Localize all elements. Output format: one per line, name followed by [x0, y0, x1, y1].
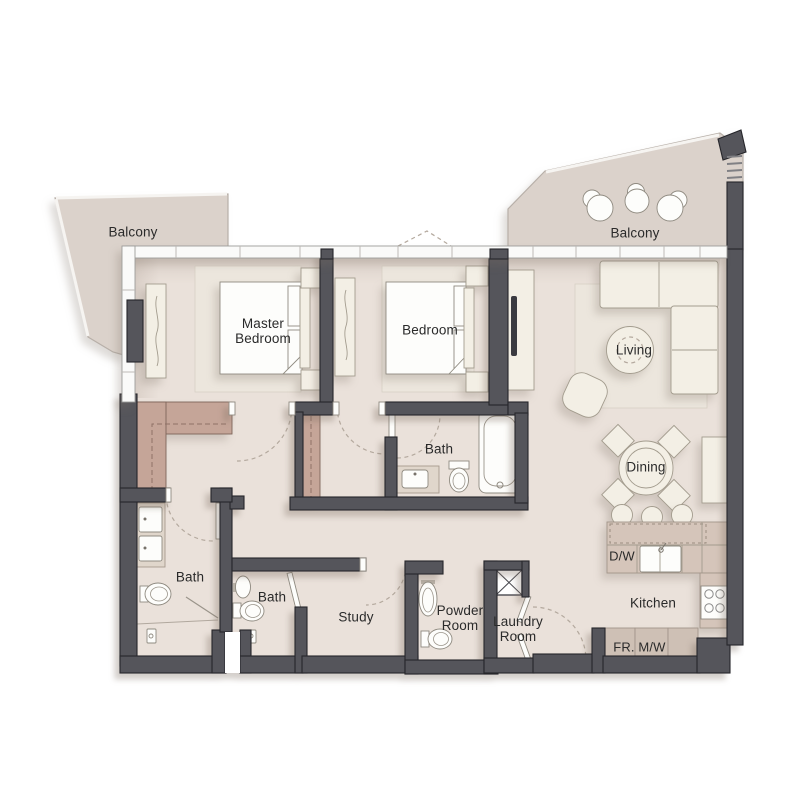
wall-bottom: [603, 656, 700, 673]
powder-sink: [419, 582, 437, 616]
bedroom-nightstand: [466, 266, 488, 286]
laundry-label-line2: Room: [493, 629, 543, 644]
room-label-living: Living: [616, 343, 652, 358]
room-label-bath-upper: Bath: [425, 442, 453, 457]
floor-plan-drawing: [0, 0, 800, 800]
master-headboard: [300, 288, 310, 368]
room-label-kitchen: Kitchen: [630, 596, 676, 611]
vanity-sink: [139, 507, 162, 532]
shaft: [225, 632, 240, 673]
kitchen-sink: [640, 546, 681, 572]
powder-label-line2: Room: [437, 618, 484, 633]
shower-valve: [147, 629, 156, 643]
room-label-dining: Dining: [626, 460, 665, 475]
wall-corridor: [290, 497, 528, 510]
bedroom-headboard: [464, 288, 474, 368]
vanity-sink: [139, 536, 162, 561]
window-pier: [321, 249, 333, 259]
label-fridge: FR.: [613, 640, 634, 655]
master-label-line1: Master: [235, 316, 291, 331]
master-label-line2: Bedroom: [235, 331, 291, 346]
wall-master-divider: [320, 251, 333, 404]
master-closet-vertical: [135, 402, 166, 495]
label-dishwasher: D/W: [609, 549, 635, 564]
room-label-study: Study: [338, 610, 373, 625]
powder-label-line1: Powder: [437, 603, 484, 618]
pantry-cabinet: [702, 437, 727, 503]
wall-bottom: [302, 656, 418, 673]
wall-bottom: [240, 656, 303, 673]
label-microwave: M/W: [638, 640, 665, 655]
bath-sink: [236, 576, 251, 598]
room-label-bath-mid: Bath: [258, 590, 286, 605]
laundry-label-line1: Laundry: [493, 614, 543, 629]
window-band-top: [126, 246, 727, 258]
window-pier: [490, 249, 508, 259]
room-label-bedroom: Bedroom: [402, 323, 458, 338]
counter-cell: [668, 628, 698, 658]
wall-left: [120, 394, 137, 666]
window-pier: [127, 300, 143, 362]
tv: [511, 296, 517, 356]
room-label-balcony-right: Balcony: [610, 226, 659, 241]
room-label-bath-left: Bath: [176, 570, 204, 585]
room-label-balcony-left: Balcony: [108, 225, 157, 240]
wall-right: [727, 249, 743, 645]
wall-living-divider: [489, 251, 508, 405]
room-label-laundry-room: Laundry Room: [493, 614, 543, 644]
floor-plan: Balcony Balcony Master Bedroom Bedroom L…: [0, 0, 800, 800]
bedroom-nightstand: [466, 372, 488, 392]
wall-bottom: [120, 656, 226, 673]
balcony-door-swing: [398, 231, 451, 246]
room-label-powder-room: Powder Room: [437, 603, 484, 633]
toilet: [450, 468, 469, 492]
room-label-master-bedroom: Master Bedroom: [235, 316, 291, 346]
